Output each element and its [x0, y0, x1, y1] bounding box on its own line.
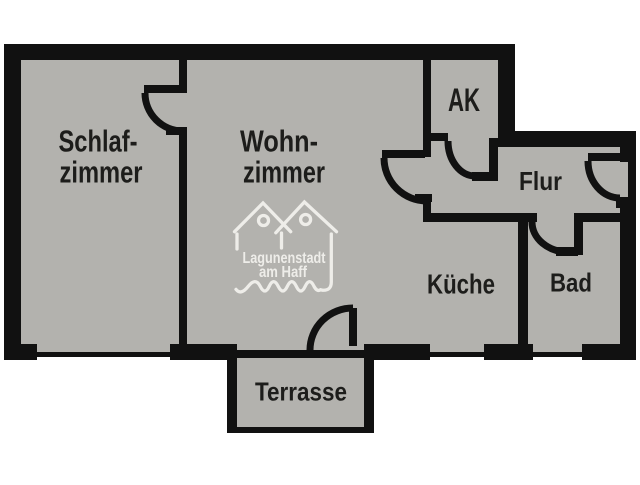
svg-text:Terrasse: Terrasse — [255, 377, 347, 407]
svg-text:Flur: Flur — [519, 166, 562, 196]
svg-text:Küche: Küche — [427, 269, 495, 300]
svg-text:zimmer: zimmer — [243, 155, 325, 190]
svg-text:Wohn-: Wohn- — [240, 124, 318, 159]
svg-text:Schlaf-: Schlaf- — [59, 124, 138, 159]
svg-text:am Haff: am Haff — [259, 264, 308, 281]
svg-text:AK: AK — [448, 82, 480, 118]
svg-text:Bad: Bad — [550, 268, 592, 298]
svg-text:zimmer: zimmer — [60, 155, 143, 190]
